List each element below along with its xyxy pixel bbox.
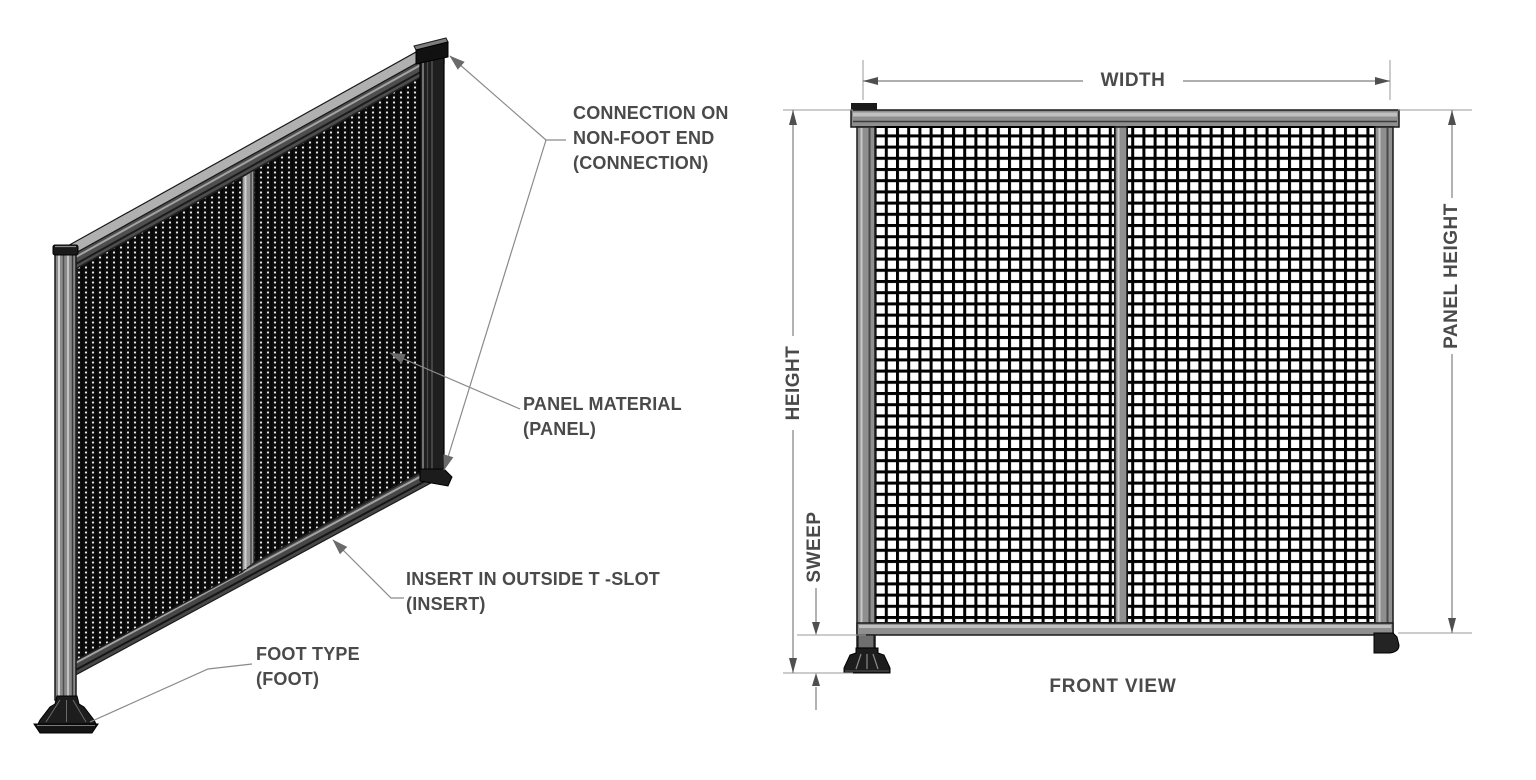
front-right-post	[1375, 127, 1393, 633]
dim-width-label: WIDTH	[1101, 70, 1166, 92]
callout-connection-line3: (CONNECTION)	[573, 151, 729, 176]
leader-foot	[90, 664, 252, 722]
callout-panel-line1: PANEL MATERIAL	[523, 392, 682, 417]
callout-insert-line2: (INSERT)	[406, 592, 660, 617]
iso-foot	[34, 696, 98, 733]
front-top-left-cap	[851, 103, 877, 110]
front-top-rail	[851, 103, 1399, 127]
callout-connection-line1: CONNECTION ON	[573, 101, 729, 126]
dimension-panel-height	[1398, 110, 1472, 633]
callout-insert: INSERT IN OUTSIDE T -SLOT (INSERT)	[406, 567, 660, 617]
technical-drawing: CONNECTION ON NON-FOOT END (CONNECTION) …	[0, 0, 1536, 780]
front-left-foot	[844, 635, 890, 673]
front-left-post	[857, 127, 875, 648]
front-right-foot	[1374, 633, 1399, 653]
callout-foot-line1: FOOT TYPE	[256, 642, 360, 667]
iso-right-post	[414, 38, 452, 486]
front-mesh-bay-right	[1127, 127, 1375, 623]
leader-insert	[333, 540, 404, 598]
callout-foot-type: FOOT TYPE (FOOT)	[256, 642, 360, 692]
callout-panel-line2: (PANEL)	[523, 417, 682, 442]
callout-insert-line1: INSERT IN OUTSIDE T -SLOT	[406, 567, 660, 592]
iso-left-post	[53, 245, 78, 700]
callout-panel-material: PANEL MATERIAL (PANEL)	[523, 392, 682, 442]
front-center-post	[1115, 127, 1127, 623]
dim-height-label: HEIGHT	[783, 346, 805, 421]
iso-center-divider	[242, 170, 254, 572]
callout-connection: CONNECTION ON NON-FOOT END (CONNECTION)	[573, 101, 729, 176]
front-bottom-rail	[857, 623, 1393, 635]
drawing-geometry	[0, 0, 1536, 780]
leader-connection-top	[450, 56, 566, 140]
isometric-view	[34, 38, 566, 733]
front-mesh-bay-left	[875, 127, 1115, 623]
callout-foot-line2: (FOOT)	[256, 667, 360, 692]
dim-sweep-label: SWEEP	[804, 511, 826, 582]
front-view	[783, 60, 1472, 710]
front-view-caption: FRONT VIEW	[1049, 676, 1176, 698]
dim-panel-height-label: PANEL HEIGHT	[1441, 203, 1463, 349]
callout-connection-line2: NON-FOOT END	[573, 126, 729, 151]
